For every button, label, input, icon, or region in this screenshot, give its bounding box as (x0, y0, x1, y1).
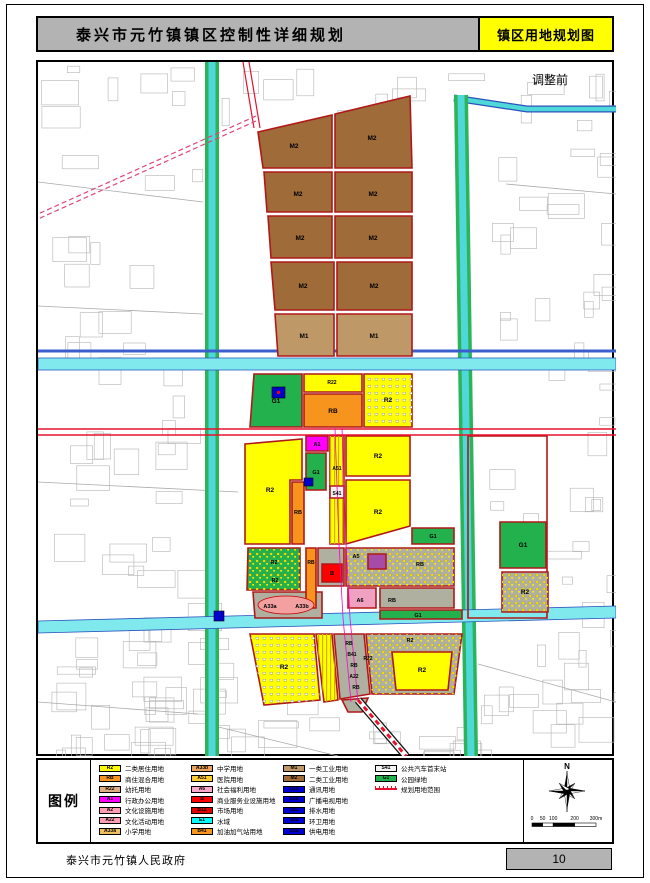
legend-swatch: B (191, 796, 213, 803)
parcel-code-label: R2 (406, 638, 413, 644)
parcel-code-label: R2 (271, 578, 278, 584)
legend-item: R22幼托用地 (99, 785, 187, 793)
legend-swatch: A2 (99, 807, 121, 814)
map-annotation: 调整前 (532, 72, 568, 87)
legend-label: 通讯用地 (309, 784, 335, 794)
legend-label: 商业服务业设施用地 (217, 795, 276, 805)
boundary-line-swatch (375, 786, 397, 793)
scale-tick-label: 300m (590, 816, 603, 822)
legend-label: 行政办公用地 (125, 795, 164, 805)
legend-label: 市场用地 (217, 805, 243, 815)
scale-tick-label: 200 (570, 816, 579, 822)
legend-item: M1一类工业用地 (283, 764, 371, 772)
legend-swatch: RB (99, 775, 121, 782)
parcel-code-label: A22 (349, 674, 358, 680)
parcel-code-label: R2 (374, 509, 383, 516)
legend-title: 图例 (38, 760, 91, 842)
parcel-code-label: RB (388, 598, 396, 604)
legend-item: RB商住混合用地 (99, 775, 187, 783)
legend-column: R2二类居住用地RB商住混合用地R22幼托用地A1行政办公用地A2文化设施用地A… (99, 764, 187, 840)
legend-box: 图例 R2二类居住用地RB商住混合用地R22幼托用地A1行政办公用地A2文化设施… (36, 758, 614, 844)
parcel-code-label: RB (307, 560, 315, 566)
legend-label: 二类居住用地 (125, 763, 164, 773)
parcel-code-label: B (330, 571, 334, 577)
legend-item: M2二类工业用地 (283, 775, 371, 783)
parcel-code-label: S41 (333, 491, 342, 497)
legend-label: 二类工业用地 (309, 774, 348, 784)
parcel-code-label: G1 (414, 613, 421, 619)
parcel-code-label: A6 (356, 598, 363, 604)
parcel-code-label: M1 (299, 333, 308, 340)
legend-label: 公共汽车首末站 (401, 763, 447, 773)
legend-label: 中学用地 (217, 763, 243, 773)
legend-item: S41公共汽车首末站 (375, 764, 463, 772)
scale-tick-label: 100 (549, 816, 558, 822)
legend-swatch: A1 (99, 796, 121, 803)
parcel-code-label: M2 (368, 235, 377, 242)
scale-tick-label: 0 (531, 816, 534, 822)
parcel-code-label: G1 (272, 398, 281, 405)
legend-swatch: U22 (283, 817, 305, 824)
legend-swatch: A22 (99, 817, 121, 824)
legend-item: A33b中学用地 (191, 764, 279, 772)
parcel-code-label: R2 (374, 453, 383, 460)
parcel (258, 115, 332, 168)
legend-item: A51医院用地 (191, 775, 279, 783)
legend-item: U21排水用地 (283, 806, 371, 814)
map-title-box: 镇区用地规划图 (478, 18, 612, 50)
parcel-code-label: M2 (298, 283, 307, 290)
legend-label: 社会福利用地 (217, 784, 256, 794)
legend-swatch: M1 (283, 765, 305, 772)
legend-item: R2二类居住用地 (99, 764, 187, 772)
legend-swatch: U21 (283, 807, 305, 814)
parcel-code-label: G1 (312, 470, 319, 476)
legend-item: B12市场用地 (191, 806, 279, 814)
legend-label: 环卫用地 (309, 816, 335, 826)
map-title: 镇区用地规划图 (497, 25, 595, 44)
legend-item: U22环卫用地 (283, 817, 371, 825)
legend-swatch: U16 (283, 796, 305, 803)
legend-label: 小学用地 (125, 826, 151, 836)
legend-swatch: M2 (283, 775, 305, 782)
legend-label: 供电用地 (309, 826, 335, 836)
legend-column: M1一类工业用地M2二类工业用地U15通讯用地U16广播电视用地U21排水用地U… (283, 764, 371, 840)
legend-grid: R2二类居住用地RB商住混合用地R22幼托用地A1行政办公用地A2文化设施用地A… (91, 760, 523, 842)
parcel-code-label: M1 (369, 333, 378, 340)
legend-swatch: A33a (99, 828, 121, 835)
legend-swatch: G1 (375, 775, 397, 782)
parcel-code-label: M2 (369, 283, 378, 290)
parcel (335, 96, 412, 168)
parcel-code-label: M2 (295, 235, 304, 242)
legend-swatch: A51 (191, 775, 213, 782)
parcel-code-label: M2 (367, 135, 376, 142)
legend-label: 规划用地范围 (401, 784, 440, 794)
parcel-code-label: A51 (332, 466, 341, 472)
parcel-code-label: A33b (295, 604, 309, 610)
legend-swatch: A33b (191, 765, 213, 772)
parcel-code-label: A1 (313, 442, 320, 448)
legend-label: 文化活动用地 (125, 816, 164, 826)
legend-item: A33a小学用地 (99, 827, 187, 835)
legend-label: 一类工业用地 (309, 763, 348, 773)
legend-swatch: U15 (283, 786, 305, 793)
parcel-code-label: R2 (280, 664, 289, 671)
parcel-code-label: RB (416, 562, 424, 568)
compass-rose: N050100200300m (524, 760, 609, 840)
parcel-code-label: M2 (293, 191, 302, 198)
parcel-code-label: R22 (327, 380, 336, 386)
parcel-code-label: RB (352, 685, 360, 691)
legend-swatch: U12 (283, 828, 305, 835)
legend-label: 水域 (217, 816, 230, 826)
parcel (368, 554, 386, 569)
legend-item: U16广播电视用地 (283, 796, 371, 804)
legend-swatch: E1 (191, 817, 213, 824)
parcel-code-label: M2 (368, 191, 377, 198)
legend-item: U15通讯用地 (283, 785, 371, 793)
parcel-code-label: G1 (519, 542, 528, 549)
footer: 泰兴市元竹镇人民政府 10 (36, 846, 614, 874)
legend-label: 加油加气站用地 (217, 826, 263, 836)
legend-item: B41加油加气站用地 (191, 827, 279, 835)
parcel-code-label: RB (350, 663, 358, 669)
legend-label: 幼托用地 (125, 784, 151, 794)
parcel-code-label: RB (294, 510, 302, 516)
parcel-code-label: M2 (289, 143, 298, 150)
plan-sheet: 泰兴市元竹镇镇区控制性详细规划 镇区用地规划图 (0, 0, 650, 883)
parcel-code-label: R2 (521, 589, 530, 596)
legend-swatch: R22 (99, 786, 121, 793)
legend-label: 商住混合用地 (125, 774, 164, 784)
legend-item: A1行政办公用地 (99, 796, 187, 804)
compass-cell: N050100200300m (523, 760, 612, 842)
parcel-code-label: G1 (429, 534, 436, 540)
parcel-code-label: A33a (263, 604, 277, 610)
legend-label: 排水用地 (309, 805, 335, 815)
header-bar: 泰兴市元竹镇镇区控制性详细规划 镇区用地规划图 (36, 16, 614, 52)
parcel-code-label: R2 (266, 487, 275, 494)
plan-title: 泰兴市元竹镇镇区控制性详细规划 (76, 18, 346, 50)
legend-item: U12供电用地 (283, 827, 371, 835)
legend-item: G1公园绿地 (375, 775, 463, 783)
legend-label: 文化设施用地 (125, 805, 164, 815)
legend-item: 规划用地范围 (375, 785, 463, 793)
north-label: N (564, 762, 570, 771)
legend-item: E1水域 (191, 817, 279, 825)
legend-swatch: B41 (191, 828, 213, 835)
legend-swatch: R2 (99, 765, 121, 772)
planning-map: M2M2M2M2M2M2M2M2M1M1G1R22RBR2R2A1G1A51S4… (38, 62, 616, 756)
legend-item: A2文化设施用地 (99, 806, 187, 814)
legend-item: A22文化活动用地 (99, 817, 187, 825)
legend-label: 公园绿地 (401, 774, 427, 784)
parcel-code-label: RB (345, 641, 353, 647)
parcel-code-label: R2 (418, 667, 427, 674)
parcel-code-label: R2 (270, 560, 277, 566)
parcel-code-label: RB (328, 408, 338, 415)
legend-swatch: A6 (191, 786, 213, 793)
page-number: 10 (506, 848, 612, 870)
legend-item: A6社会福利用地 (191, 785, 279, 793)
parcel-code-label: R22 (363, 656, 372, 662)
legend-swatch: S41 (375, 765, 397, 772)
org-name: 泰兴市元竹镇人民政府 (66, 852, 186, 868)
legend-column: S41公共汽车首末站G1公园绿地规划用地范围 (375, 764, 463, 840)
map-frame: M2M2M2M2M2M2M2M2M1M1G1R22RBR2R2A1G1A51S4… (36, 60, 614, 756)
legend-label: 医院用地 (217, 774, 243, 784)
scale-tick-label: 50 (540, 816, 546, 822)
legend-column: A33b中学用地A51医院用地A6社会福利用地B商业服务业设施用地B12市场用地… (191, 764, 279, 840)
parcel-code-label: B41 (347, 652, 356, 658)
legend-label: 广播电视用地 (309, 795, 348, 805)
parcel-code-label: A5 (352, 554, 359, 560)
parcel-code-label: R2 (384, 397, 393, 404)
legend-swatch: B12 (191, 807, 213, 814)
legend-item: B商业服务业设施用地 (191, 796, 279, 804)
